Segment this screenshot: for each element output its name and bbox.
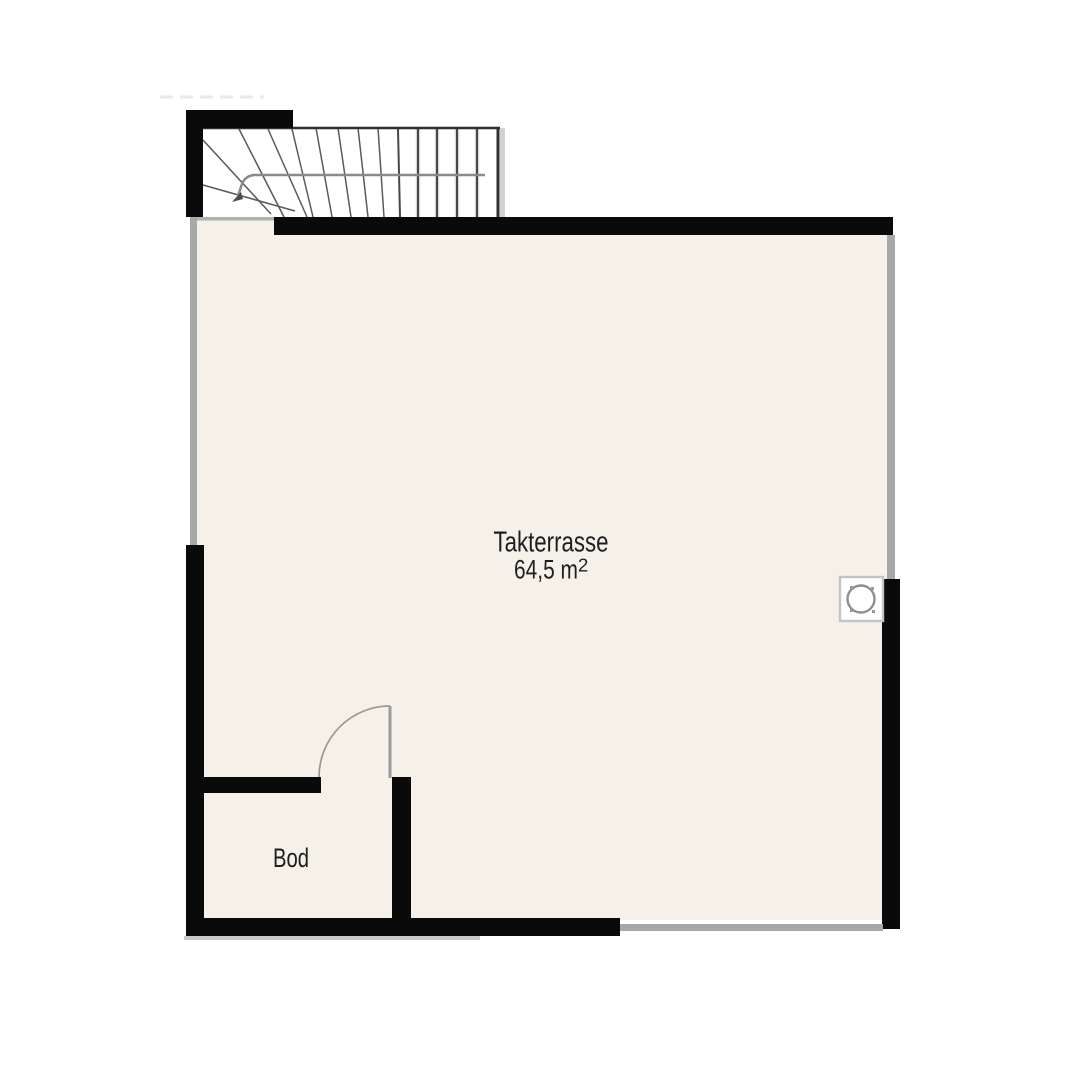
svg-text:Bod: Bod: [273, 843, 309, 873]
svg-text:64,5 m: 64,5 m: [514, 555, 578, 585]
svg-text:2: 2: [578, 555, 588, 576]
